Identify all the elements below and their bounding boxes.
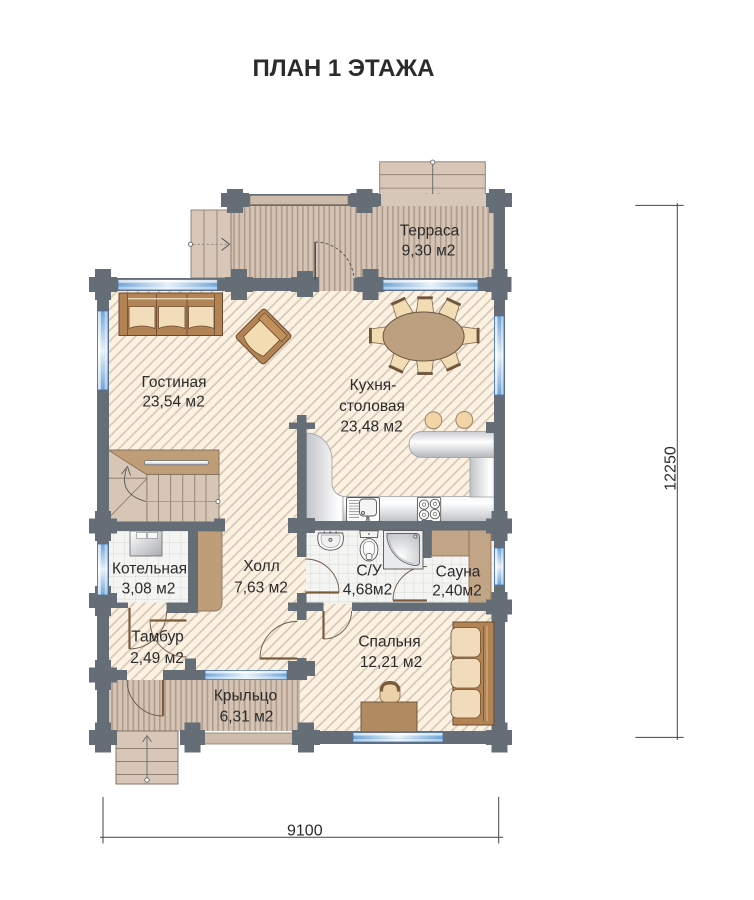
svg-text:2,49 м2: 2,49 м2 xyxy=(130,650,184,667)
svg-text:Кухня-: Кухня- xyxy=(350,377,397,394)
svg-text:7,63 м2: 7,63 м2 xyxy=(234,580,288,597)
svg-text:Сауна: Сауна xyxy=(436,564,481,581)
svg-text:23,54 м2: 23,54 м2 xyxy=(142,394,204,411)
svg-text:9100: 9100 xyxy=(287,822,323,839)
svg-text:Котельная: Котельная xyxy=(112,561,187,578)
svg-text:6,31 м2: 6,31 м2 xyxy=(220,709,274,726)
svg-text:12250: 12250 xyxy=(663,446,680,491)
svg-text:2,40м2: 2,40м2 xyxy=(432,583,481,600)
svg-text:Терраса: Терраса xyxy=(400,223,460,240)
svg-text:столовая: столовая xyxy=(339,398,405,415)
svg-text:3,08 м2: 3,08 м2 xyxy=(122,581,176,598)
svg-text:Тамбур: Тамбур xyxy=(131,629,184,646)
svg-text:4,68м2: 4,68м2 xyxy=(343,582,392,599)
svg-text:ПЛАН 1 ЭТАЖА: ПЛАН 1 ЭТАЖА xyxy=(252,55,434,82)
svg-text:Спальня: Спальня xyxy=(358,634,420,651)
svg-text:9,30 м2: 9,30 м2 xyxy=(402,243,456,260)
svg-text:23,48 м2: 23,48 м2 xyxy=(340,419,402,436)
svg-text:12,21 м2: 12,21 м2 xyxy=(360,654,422,671)
svg-text:Крыльцо: Крыльцо xyxy=(214,688,277,705)
svg-text:С/У: С/У xyxy=(356,563,382,580)
svg-text:Гостиная: Гостиная xyxy=(141,374,206,391)
svg-text:Холл: Холл xyxy=(243,558,280,575)
